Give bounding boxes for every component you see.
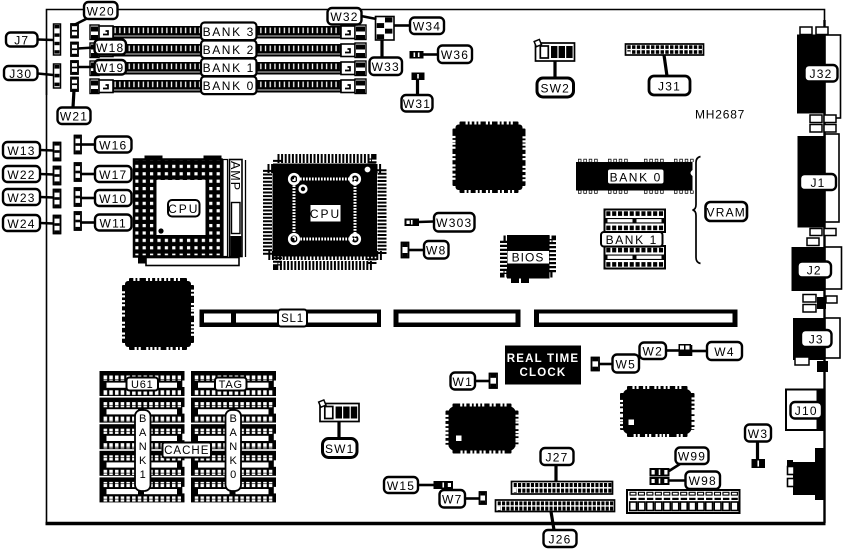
svg-text:W303: W303	[436, 216, 472, 230]
svg-text:W34: W34	[413, 20, 441, 34]
svg-text:BANK 3: BANK 3	[203, 25, 255, 39]
svg-text:BANK 0: BANK 0	[203, 79, 255, 93]
svg-text:U61: U61	[131, 379, 154, 391]
svg-text:W1: W1	[453, 375, 473, 389]
svg-text:W15: W15	[387, 479, 415, 493]
svg-text:CPU: CPU	[168, 202, 199, 216]
svg-text:J7: J7	[14, 33, 29, 47]
svg-text:W16: W16	[99, 138, 127, 152]
svg-text:W98: W98	[689, 474, 717, 488]
svg-text:K: K	[230, 455, 238, 467]
svg-text:CLOCK: CLOCK	[520, 367, 567, 379]
svg-text:W17: W17	[99, 168, 127, 182]
svg-text:J31: J31	[658, 79, 681, 93]
svg-text:W21: W21	[60, 110, 88, 124]
svg-text:BANK 2: BANK 2	[203, 43, 255, 57]
svg-text:J30: J30	[9, 67, 32, 81]
svg-text:W22: W22	[7, 168, 35, 182]
svg-text:BANK 1: BANK 1	[606, 233, 658, 247]
svg-text:BIOS: BIOS	[512, 251, 545, 265]
svg-text:BANK 1: BANK 1	[203, 61, 255, 75]
svg-text:CPU: CPU	[310, 207, 341, 221]
svg-text:BANK 0: BANK 0	[610, 170, 662, 184]
svg-text:W11: W11	[100, 216, 127, 230]
svg-text:A: A	[230, 427, 238, 439]
svg-text:W8: W8	[426, 244, 446, 258]
svg-text:W10: W10	[99, 192, 127, 206]
svg-text:A: A	[139, 427, 147, 439]
svg-text:J3: J3	[809, 332, 824, 346]
svg-text:AMP: AMP	[228, 161, 242, 191]
svg-text:CACHE: CACHE	[164, 445, 209, 457]
svg-text:K: K	[139, 455, 147, 467]
svg-text:W32: W32	[330, 10, 358, 24]
svg-text:TAG: TAG	[219, 379, 243, 391]
svg-text:W33: W33	[372, 60, 400, 74]
svg-text:B: B	[230, 413, 237, 425]
svg-text:W24: W24	[7, 217, 35, 231]
svg-text:W3: W3	[748, 427, 768, 441]
svg-text:W18: W18	[96, 41, 124, 55]
svg-text:W19: W19	[96, 61, 124, 75]
svg-text:W5: W5	[616, 357, 636, 371]
svg-text:J1: J1	[810, 176, 825, 190]
svg-text:J32: J32	[810, 67, 833, 81]
svg-text:W99: W99	[678, 450, 706, 464]
svg-text:REAL TIME: REAL TIME	[507, 353, 580, 365]
svg-text:SW2: SW2	[540, 81, 570, 95]
svg-text:W7: W7	[442, 493, 462, 507]
svg-text:SW1: SW1	[325, 442, 355, 456]
svg-text:VRAM: VRAM	[707, 205, 746, 219]
svg-text:W20: W20	[87, 4, 115, 18]
svg-text:W31: W31	[403, 97, 431, 111]
svg-text:W23: W23	[7, 191, 35, 205]
svg-text:J10: J10	[795, 404, 818, 418]
svg-text:J27: J27	[546, 450, 569, 464]
svg-text:W2: W2	[643, 345, 663, 359]
svg-text:J26: J26	[549, 532, 572, 546]
svg-text:N: N	[229, 441, 237, 453]
svg-text:MH2687: MH2687	[695, 108, 745, 122]
svg-text:W36: W36	[441, 48, 469, 62]
svg-text:J2: J2	[807, 263, 822, 277]
svg-text:W13: W13	[7, 144, 35, 158]
svg-text:W4: W4	[714, 345, 734, 359]
svg-text:1: 1	[140, 469, 146, 481]
svg-text:B: B	[139, 413, 146, 425]
svg-text:0: 0	[230, 469, 236, 481]
svg-text:SL1: SL1	[281, 313, 304, 325]
svg-text:N: N	[139, 441, 147, 453]
